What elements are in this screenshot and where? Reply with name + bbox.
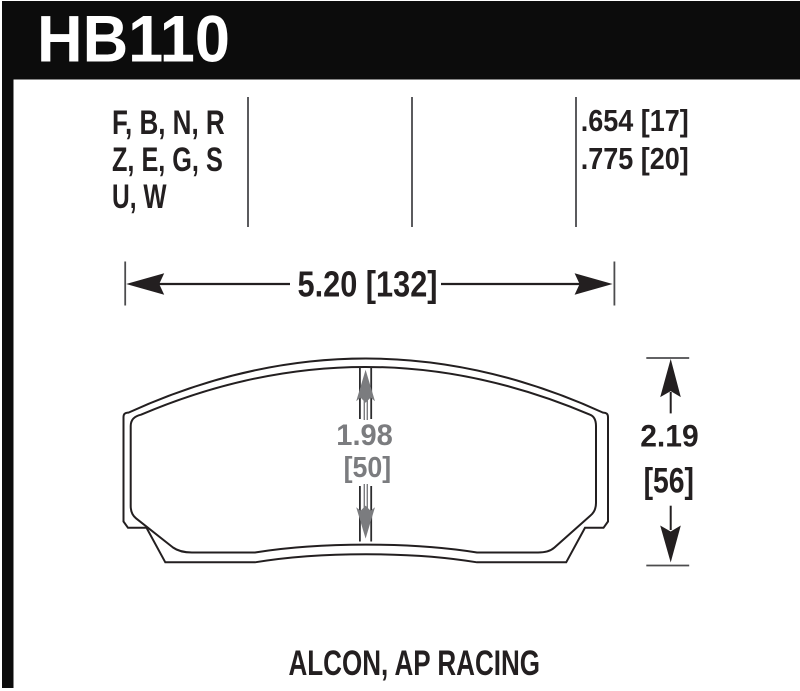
svg-text:HB110: HB110 [37,3,230,76]
svg-text:5.20 [132]: 5.20 [132] [298,264,438,305]
svg-text:[50]: [50] [344,452,392,484]
svg-text:.775 [20]: .775 [20] [581,141,689,176]
svg-text:.654 [17]: .654 [17] [581,103,689,138]
svg-text:ALCON, AP RACING: ALCON, AP RACING [289,643,541,683]
svg-text:2.19: 2.19 [640,418,699,454]
svg-text:[56]: [56] [644,461,694,501]
svg-text:1.98: 1.98 [336,419,393,452]
svg-text:Z, E, G, S: Z, E, G, S [112,141,223,179]
svg-text:F, B, N, R: F, B, N, R [112,104,225,142]
svg-text:U, W: U, W [112,178,167,216]
